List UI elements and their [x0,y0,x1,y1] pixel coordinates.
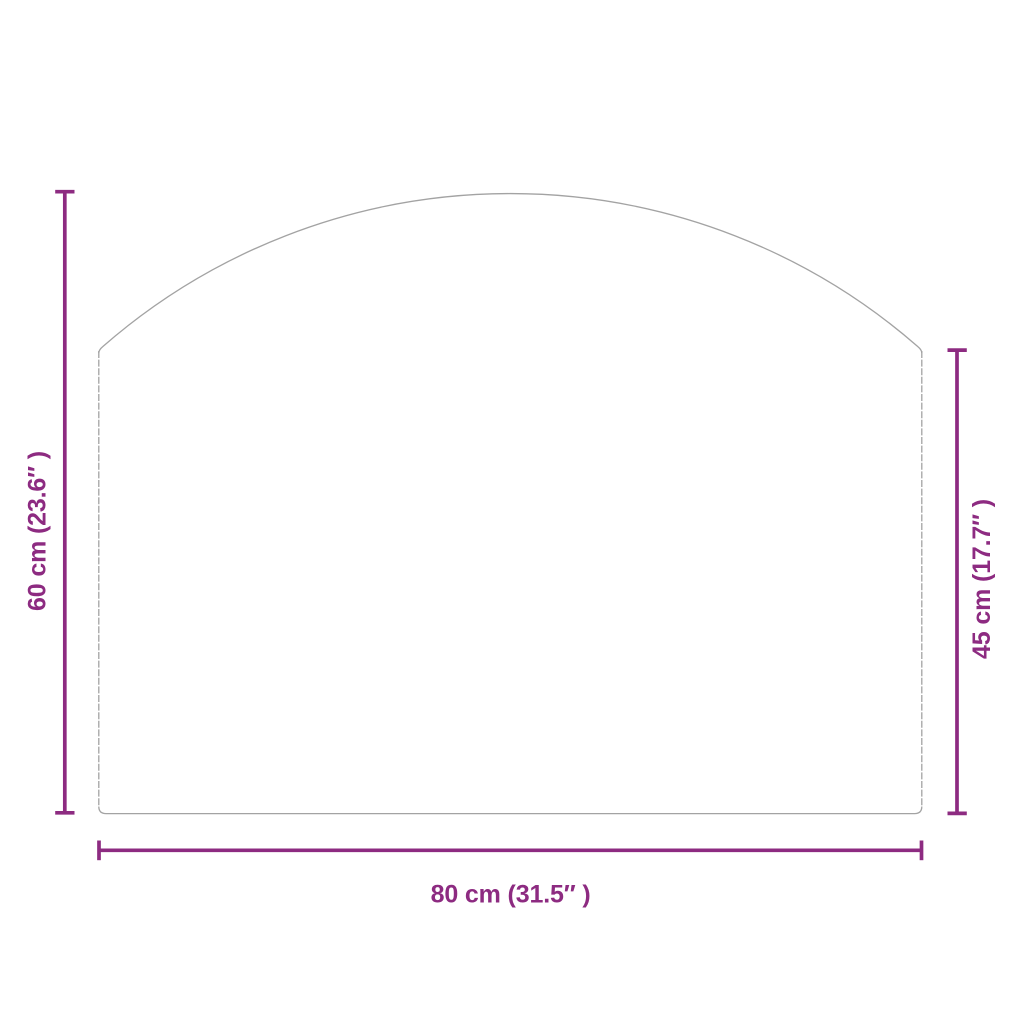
svg-text:80 cm (31.5″ ): 80 cm (31.5″ ) [431,881,591,909]
svg-text:45 cm (17.7″ ): 45 cm (17.7″ ) [968,499,996,659]
svg-text:60 cm (23.6″ ): 60 cm (23.6″ ) [24,451,52,611]
